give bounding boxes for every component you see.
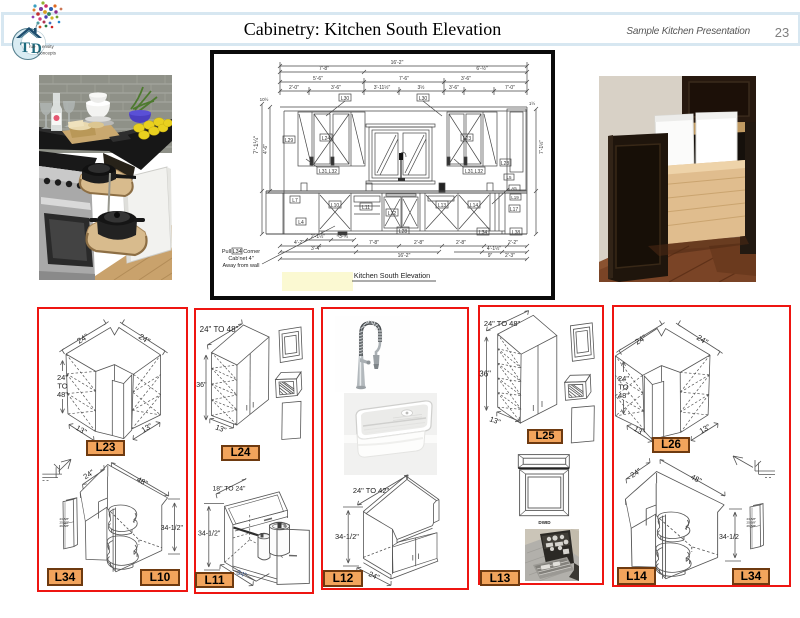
svg-text:24": 24" (629, 466, 643, 480)
svg-text:L19: L19 (511, 195, 519, 200)
svg-text:7'-6": 7'-6" (399, 76, 409, 82)
svg-text:L24: L24 (322, 136, 331, 142)
svg-text:48": 48" (689, 472, 703, 485)
svg-text:L30: L30 (341, 96, 350, 102)
svg-text:5'-6": 5'-6" (313, 76, 323, 82)
svg-text:24": 24" (695, 333, 710, 347)
svg-text:34": 34" (235, 569, 248, 580)
svg-text:2'-8": 2'-8" (456, 240, 466, 246)
svg-text:9": 9" (488, 253, 493, 259)
svg-text:L5: L5 (506, 175, 512, 180)
svg-text:34-1/2": 34-1/2" (335, 532, 359, 541)
svg-text:L12: L12 (388, 211, 397, 217)
svg-text:26-5/8": 26-5/8" (60, 524, 70, 528)
svg-text:1½: 1½ (529, 100, 536, 106)
svg-text:DWID: DWID (538, 520, 551, 525)
svg-text:6'-½": 6'-½" (476, 65, 488, 72)
svg-text:L14: L14 (470, 203, 479, 209)
svg-text:48": 48" (618, 391, 629, 400)
svg-text:L7: L7 (292, 198, 298, 204)
svg-text:16'-2": 16'-2" (391, 60, 404, 66)
svg-text:2'-2": 2'-2" (508, 240, 518, 246)
svg-text:36": 36" (196, 382, 207, 389)
svg-text:7'-1¼": 7'-1¼" (253, 135, 260, 154)
svg-text:Away from wall: Away from wall (223, 263, 260, 269)
svg-text:2'-3": 2'-3" (505, 253, 515, 259)
svg-text:26-5/8": 26-5/8" (747, 524, 757, 528)
svg-text:L10: L10 (331, 203, 340, 209)
svg-text:L11: L11 (362, 205, 370, 211)
svg-text:18" TO 24": 18" TO 24" (213, 486, 247, 493)
svg-text:7'-0": 7'-0" (505, 85, 515, 91)
svg-text:7'-1½": 7'-1½" (538, 140, 545, 154)
svg-text:34-1/2: 34-1/2 (719, 534, 739, 541)
svg-text:16'-2": 16'-2" (398, 253, 411, 259)
svg-text:4'-1½": 4'-1½" (487, 245, 501, 252)
svg-text:L4: L4 (298, 220, 304, 226)
svg-text:13": 13" (488, 414, 502, 426)
svg-text:3'-6": 3'-6" (461, 76, 471, 82)
svg-text:2'-1½": 2'-1½" (311, 233, 325, 240)
svg-text:2'-0": 2'-0" (289, 85, 299, 91)
svg-text:ensity: ensity (42, 44, 55, 49)
svg-text:48": 48" (57, 390, 68, 399)
svg-text:13": 13" (214, 423, 228, 435)
svg-text:24": 24" (633, 333, 648, 347)
svg-text:L28: L28 (501, 161, 510, 167)
svg-text:7'-8": 7'-8" (369, 240, 379, 246)
svg-text:~3-¾: ~3-¾ (336, 234, 348, 240)
svg-text:34-1/2": 34-1/2" (161, 525, 184, 532)
svg-text:10½: 10½ (260, 96, 269, 102)
svg-text:L30: L30 (419, 96, 428, 102)
svg-text:24" TO 48": 24" TO 48" (200, 325, 239, 334)
svg-text:13": 13" (698, 422, 712, 435)
svg-text:36": 36" (479, 370, 491, 379)
svg-text:L34: L34 (479, 230, 488, 236)
svg-text:24" TO 42": 24" TO 42" (353, 486, 390, 495)
svg-text:Cab'net 4": Cab'net 4" (228, 256, 253, 262)
svg-text:34-1/2": 34-1/2" (198, 531, 221, 538)
svg-text:3'-6": 3'-6" (449, 85, 459, 91)
svg-text:L31,L32: L31,L32 (465, 169, 483, 175)
svg-text:3½: 3½ (418, 84, 426, 91)
svg-text:Kitchen South Elevation: Kitchen South Elevation (354, 271, 430, 280)
svg-text:2'-8": 2'-8" (414, 240, 424, 246)
svg-text:13": 13" (140, 421, 154, 434)
svg-text:Concepts: Concepts (37, 51, 57, 56)
svg-text:3'-6": 3'-6" (331, 85, 341, 91)
svg-text:L31,L32: L31,L32 (319, 169, 337, 175)
svg-text:L17: L17 (510, 207, 519, 213)
svg-text:24": 24" (82, 467, 96, 481)
svg-text:L13: L13 (438, 203, 447, 209)
svg-text:3'-4": 3'-4" (311, 246, 321, 252)
svg-text:A5: A5 (511, 186, 517, 191)
svg-text:4'-6": 4'-6" (263, 144, 269, 154)
svg-text:3'-11½": 3'-11½" (374, 84, 391, 91)
svg-text:24" TO 48": 24" TO 48" (484, 319, 521, 328)
svg-text:L29: L29 (285, 138, 294, 144)
svg-text:24": 24" (367, 569, 381, 582)
svg-text:7'-8": 7'-8" (319, 66, 329, 72)
svg-text:L23: L23 (463, 136, 472, 142)
svg-text:L38: L38 (512, 230, 521, 236)
svg-text:rue: rue (29, 44, 36, 49)
